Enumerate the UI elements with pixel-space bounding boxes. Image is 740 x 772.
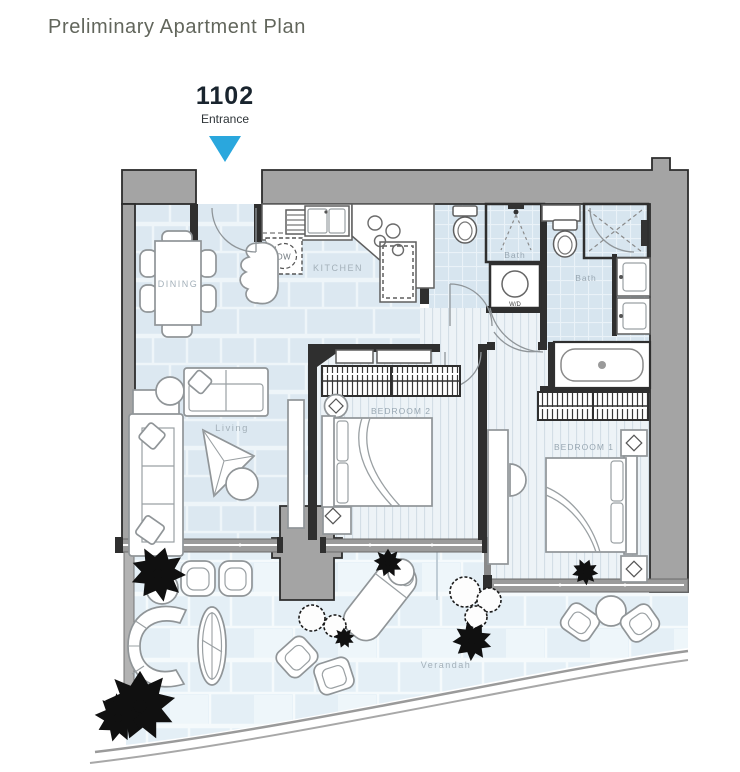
bedroom2-round-side-table bbox=[325, 395, 348, 418]
kitchen-upper-cabinet-dashed bbox=[383, 246, 413, 298]
kitchen-faucet bbox=[324, 210, 327, 213]
entry-jamb-right bbox=[254, 204, 262, 242]
bedroom2-bed bbox=[322, 416, 432, 508]
shower1-head bbox=[514, 210, 519, 215]
floor-plan-drawing: DW W/D bbox=[0, 0, 740, 772]
wall-bedroom2-bedroom1 bbox=[478, 344, 487, 540]
vanity-faucet-top bbox=[619, 275, 623, 279]
dining-label: DINING bbox=[158, 279, 199, 289]
dishwasher-label: DW bbox=[277, 253, 291, 262]
bedroom1-bed bbox=[546, 456, 637, 554]
wall-bed1-door-stub-left bbox=[487, 342, 495, 350]
floor-hall-planks bbox=[420, 308, 546, 348]
bedroom1-desk bbox=[488, 430, 508, 564]
verandah-chair-sq2 bbox=[219, 561, 252, 596]
bath2-shelf bbox=[542, 205, 580, 221]
wall-top-left-block bbox=[122, 170, 196, 204]
shower1-head-bar bbox=[508, 204, 524, 209]
apartment-plan-page: Preliminary Apartment Plan 1102 Entrance bbox=[0, 0, 740, 772]
bedroom2-wardrobe bbox=[322, 366, 460, 396]
washer-dryer-label: W/D bbox=[509, 302, 521, 308]
toilet bbox=[553, 220, 577, 257]
living-ottoman bbox=[226, 468, 258, 500]
bath2-label: Bath bbox=[575, 273, 597, 283]
verandah-chair-sq1 bbox=[181, 561, 215, 596]
wall-living-bedroom2 bbox=[308, 344, 317, 540]
toilet bbox=[453, 206, 477, 243]
vanity-faucet-bottom bbox=[619, 314, 623, 318]
bath1-label: Bath bbox=[504, 250, 526, 260]
bedroom1-wardrobe bbox=[538, 392, 648, 420]
kitchen-scallop-counter bbox=[240, 243, 278, 304]
bedroom2-shelf-2 bbox=[377, 350, 431, 363]
shower2-head-bar bbox=[641, 220, 647, 246]
bedroom1-label: BEDROOM 1 bbox=[554, 442, 614, 452]
bedroom2-label: BEDROOM 2 bbox=[371, 406, 431, 416]
living-label: Living bbox=[215, 423, 249, 434]
bathtub-drain bbox=[598, 361, 606, 369]
living-console bbox=[288, 400, 304, 528]
living-round-table bbox=[156, 377, 184, 405]
wall-bed1-door-stub-right bbox=[538, 342, 547, 350]
verandah-label: Verandah bbox=[421, 660, 472, 670]
bedroom2-shelf-1 bbox=[336, 350, 373, 363]
kitchen-label: KITCHEN bbox=[313, 263, 363, 273]
